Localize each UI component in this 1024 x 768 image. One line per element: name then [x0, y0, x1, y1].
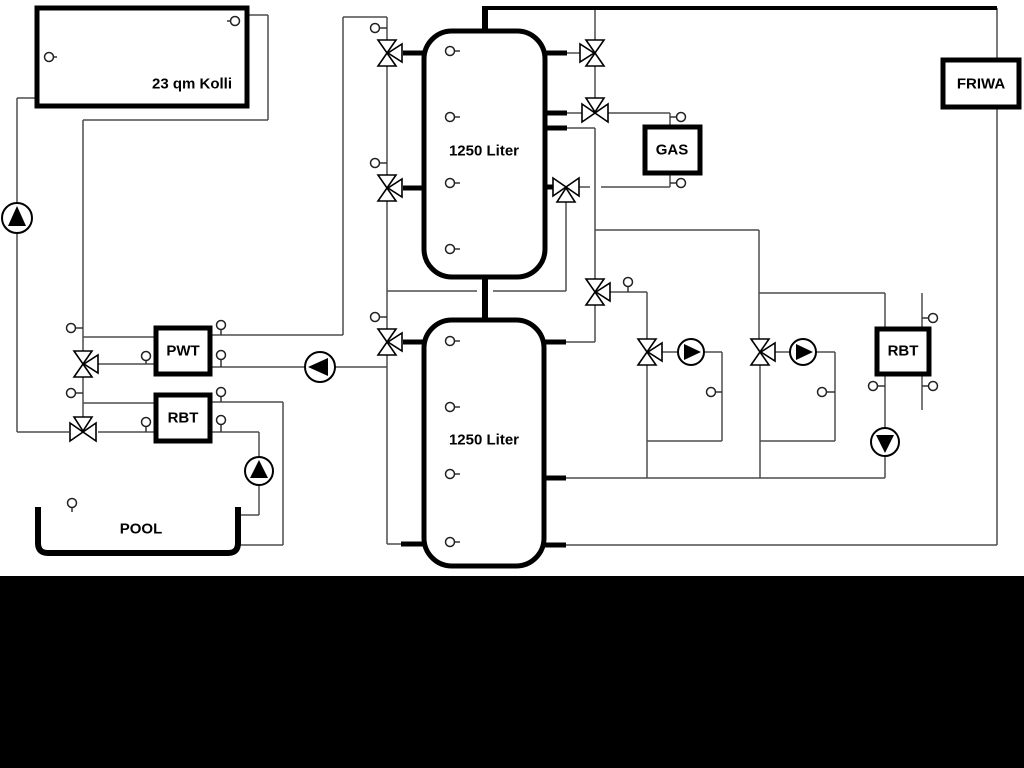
temp-sensor	[677, 179, 686, 188]
temp-sensor	[446, 538, 455, 547]
temp-sensor	[446, 470, 455, 479]
temp-sensor	[217, 321, 226, 330]
temp-sensor	[231, 17, 240, 26]
temp-sensor	[677, 113, 686, 122]
temp-sensor	[67, 324, 76, 333]
temp-sensor	[869, 382, 878, 391]
temp-sensor	[446, 47, 455, 56]
pool-basin-label: POOL	[120, 521, 163, 538]
buffer-tank-bottom-label: 1250 Liter	[449, 432, 519, 449]
rbt-right-box-label: RBT	[888, 343, 919, 360]
temp-sensor	[818, 388, 827, 397]
temp-sensor	[142, 352, 151, 361]
hydraulic-schematic: 1250 Liter1250 Liter23 qm KolliFRIWAGASP…	[0, 0, 1024, 768]
temp-sensor	[371, 159, 380, 168]
temp-sensor	[217, 351, 226, 360]
temp-sensor	[142, 418, 151, 427]
temp-sensor	[446, 245, 455, 254]
temp-sensor	[371, 24, 380, 33]
temp-sensor	[45, 53, 54, 62]
friwa-box-label: FRIWA	[957, 76, 1005, 93]
temp-sensor	[624, 278, 633, 287]
schematic-canvas: 1250 Liter1250 Liter23 qm KolliFRIWAGASP…	[0, 0, 1024, 768]
temp-sensor	[707, 388, 716, 397]
pwt-box-label: PWT	[166, 343, 199, 360]
temp-sensor	[446, 113, 455, 122]
temp-sensor	[371, 313, 380, 322]
temp-sensor	[446, 337, 455, 346]
temp-sensor	[67, 389, 76, 398]
solar-collector-box-label: 23 qm Kolli	[152, 76, 232, 93]
bottom-black-bar	[0, 576, 1024, 768]
temp-sensor	[446, 403, 455, 412]
temp-sensor	[217, 416, 226, 425]
rbt-left-box-label: RBT	[168, 410, 199, 427]
buffer-tank-top-label: 1250 Liter	[449, 143, 519, 160]
temp-sensor	[929, 382, 938, 391]
temp-sensor	[68, 499, 77, 508]
temp-sensor	[929, 314, 938, 323]
gas-boiler-box-label: GAS	[656, 142, 689, 159]
temp-sensor	[217, 388, 226, 397]
temp-sensor	[446, 179, 455, 188]
